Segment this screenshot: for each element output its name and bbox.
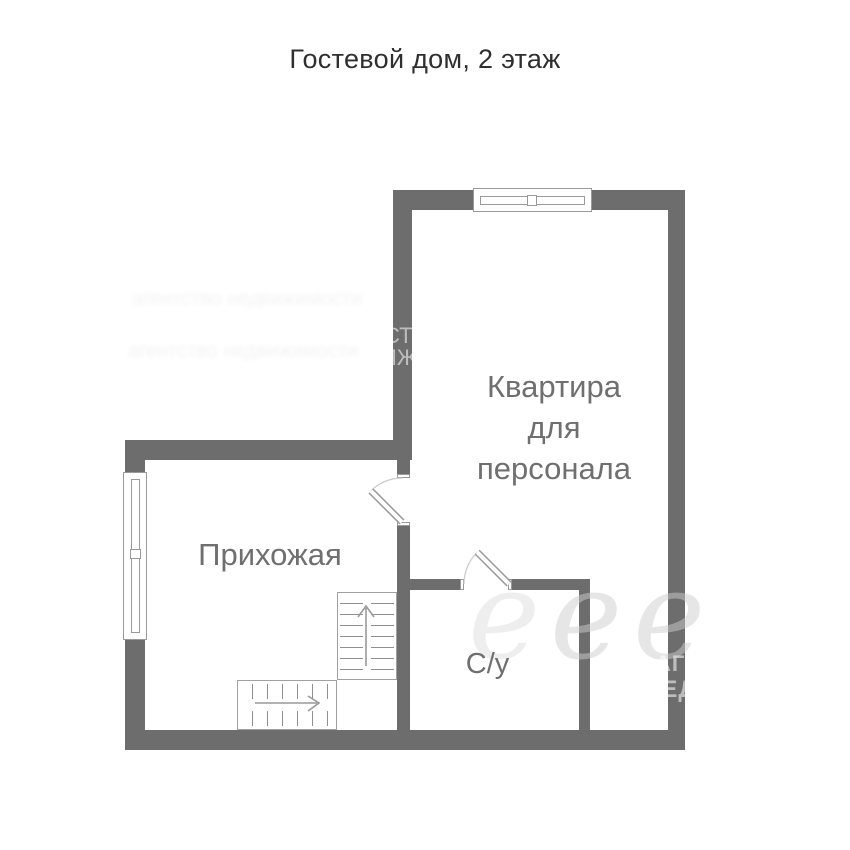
page-title: Гостевой дом, 2 этаж: [0, 44, 850, 75]
floor-plan-page: Гостевой дом, 2 этаж агентство недвижимо…: [0, 0, 850, 850]
watermark-fragment-ne: НЕД: [643, 676, 696, 704]
door-jamb-cap: [397, 474, 410, 478]
window-top-divider: [527, 195, 537, 206]
stairs-upper-flight: [337, 592, 397, 680]
window-left: [123, 472, 147, 640]
door-leaf-outline: [371, 491, 402, 522]
door-leaf: [371, 491, 402, 522]
stairs-treads-bottom: [238, 711, 334, 726]
wall-left-upper: [125, 440, 145, 473]
window-top: [473, 188, 592, 212]
window-left-divider: [130, 549, 141, 559]
watermark-fragment-izh: ИЖ: [381, 345, 417, 371]
watermark-blur-line-2: агентство недвижимости: [128, 340, 358, 363]
door-jamb-cap: [460, 579, 464, 590]
stairs-treads-top: [238, 684, 334, 699]
wall-interior-vertical: [397, 522, 410, 730]
door-swing-arc: [371, 478, 402, 491]
room-label-apartment: Квартира для персонала: [440, 366, 668, 489]
stairs-lower-flight: [237, 680, 337, 730]
watermark-script-letter: е: [550, 566, 622, 666]
stairs-treads-right: [371, 593, 394, 671]
watermark-fragment-ag: АГЕ: [655, 651, 701, 677]
wall-bottom-outer: [125, 730, 685, 750]
door-jamb-cap: [397, 522, 410, 526]
wall-bathroom-top-left: [410, 579, 464, 590]
room-label-hallway: Прихожая: [170, 534, 370, 575]
stairs-treads-left: [340, 593, 363, 671]
wall-hallway-top: [125, 440, 412, 460]
watermark-blur-line-1: агентство недвижимости: [132, 288, 362, 311]
room-label-bathroom: С/у: [455, 644, 520, 685]
